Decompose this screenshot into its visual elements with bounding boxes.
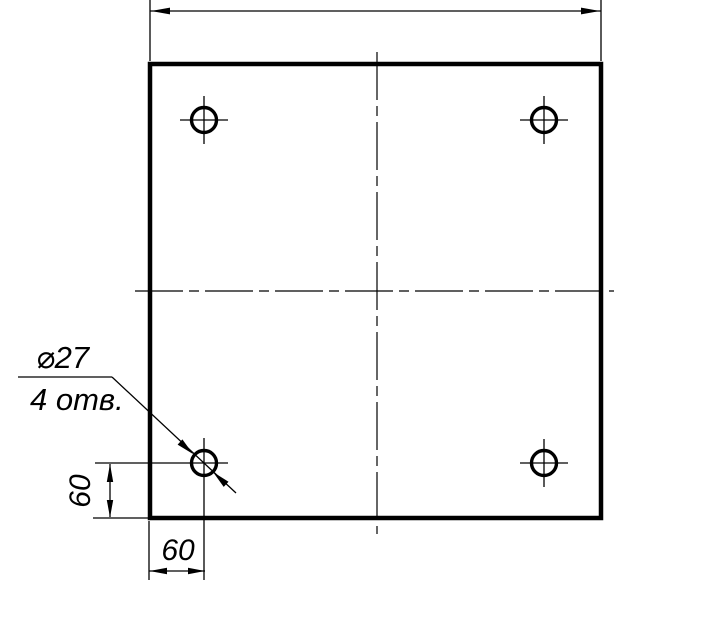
hole-count-label: 4 отв. [30, 382, 124, 417]
drawing-canvas: ⌀27 4 отв. 60 60 [0, 0, 713, 631]
arrowhead-top [107, 464, 113, 482]
arrowhead-right [581, 8, 600, 15]
arrowhead-right [188, 568, 205, 574]
horizontal-offset-value: 60 [161, 534, 195, 567]
top-overall-dimension [150, 0, 601, 61]
hole-top-left [180, 96, 228, 144]
arrowhead-left [150, 568, 168, 574]
leader-callout: ⌀27 4 отв. [18, 340, 236, 493]
hole-bottom-right [520, 439, 568, 487]
arrowhead-bottom [107, 500, 113, 518]
hole-diameter-label: ⌀27 [36, 340, 91, 375]
plate-centerlines [135, 52, 614, 534]
hole-top-right [520, 96, 568, 144]
vertical-offset-value: 60 [64, 474, 97, 508]
vertical-dimension-60: 60 [64, 464, 148, 518]
arrowhead-left [151, 8, 170, 15]
horizontal-dimension-60: 60 [149, 521, 205, 580]
leader-arrowhead-upper [178, 439, 193, 454]
technical-drawing: ⌀27 4 отв. 60 60 [0, 0, 713, 631]
